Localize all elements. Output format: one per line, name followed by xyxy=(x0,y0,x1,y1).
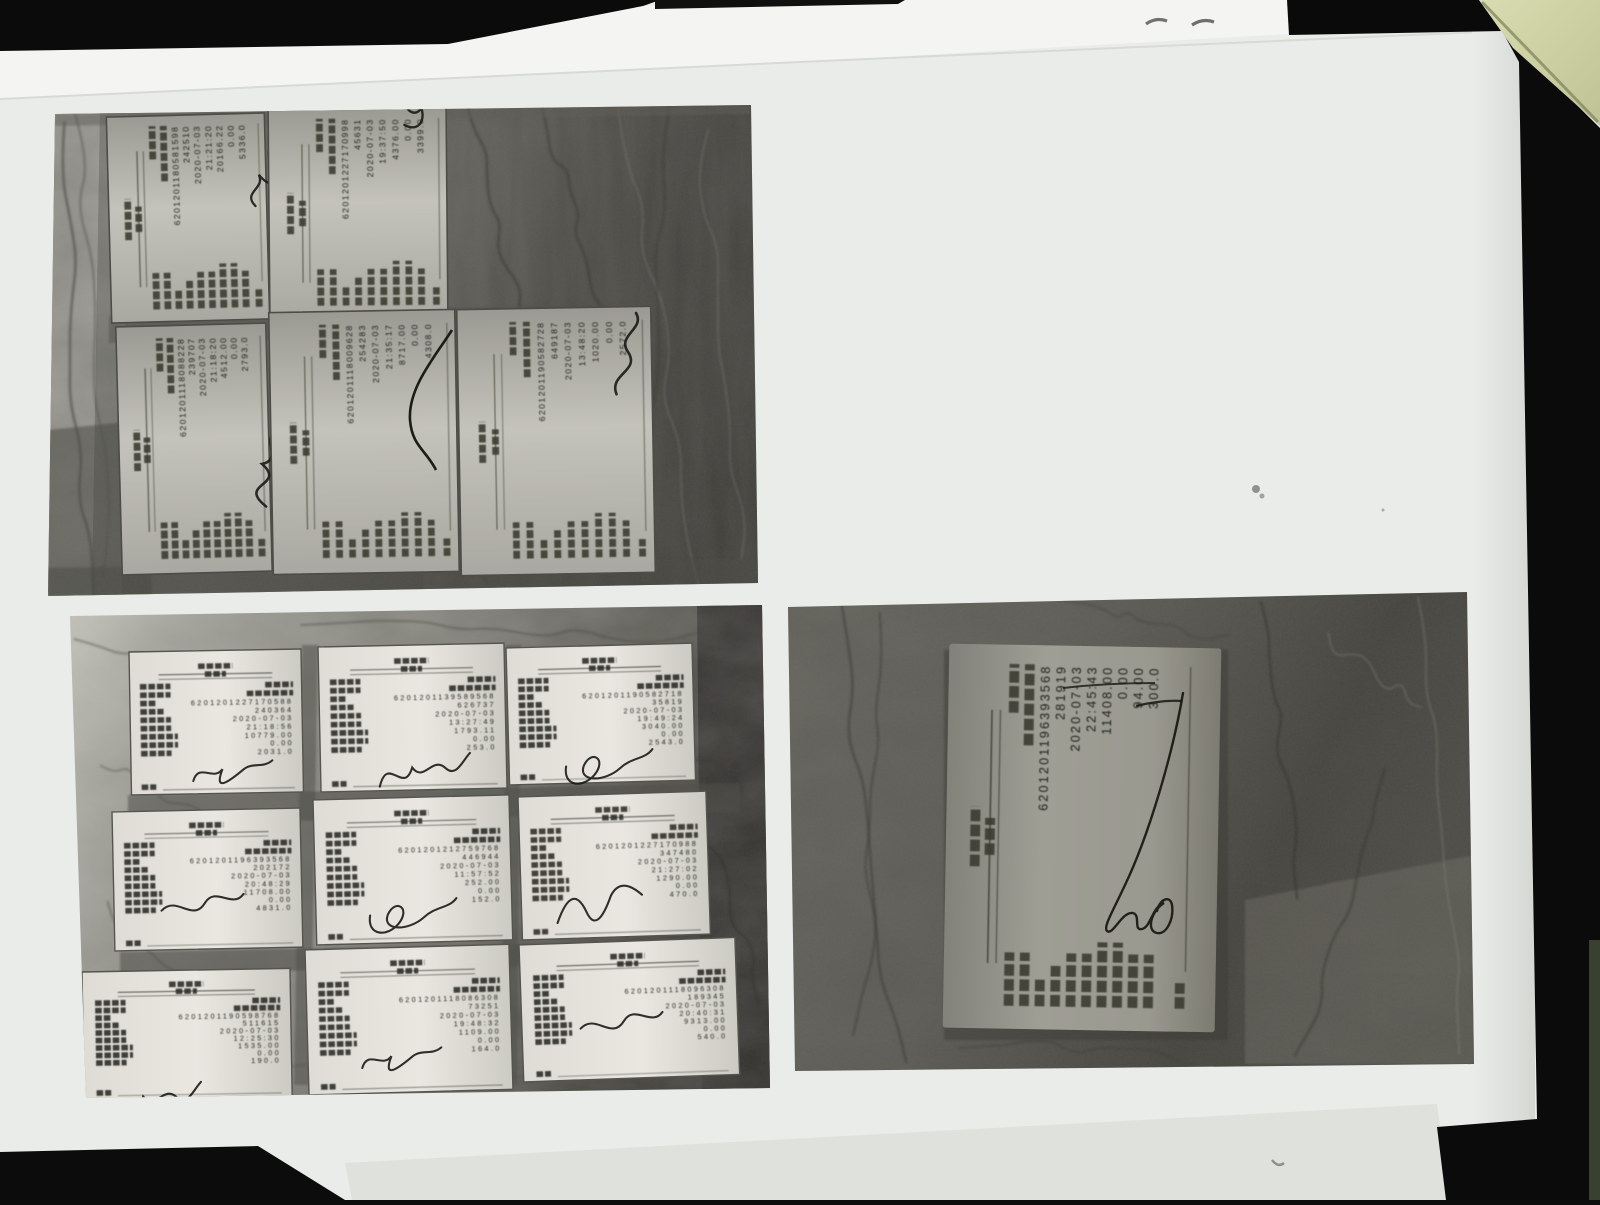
svg-text:0.00: 0.00 xyxy=(229,336,240,359)
svg-text:239707: 239707 xyxy=(186,337,197,375)
svg-text:11408.00: 11408.00 xyxy=(1100,666,1115,735)
svg-text:6201201227170998: 6201201227170998 xyxy=(340,119,351,220)
svg-text:5336.0: 5336.0 xyxy=(237,124,248,160)
svg-text:2020-07-03: 2020-07-03 xyxy=(365,118,376,177)
svg-text:6201201196393568: 6201201196393568 xyxy=(1036,664,1053,811)
svg-text:0.00: 0.00 xyxy=(604,320,614,343)
svg-text:22:45:43: 22:45:43 xyxy=(1084,665,1099,732)
svg-text:152.0: 152.0 xyxy=(472,894,502,904)
svg-text:2020-07-03: 2020-07-03 xyxy=(1068,665,1084,752)
svg-text:94.00: 94.00 xyxy=(1131,666,1146,709)
svg-text:19:37:50: 19:37:50 xyxy=(377,118,387,164)
svg-text:21:21:20: 21:21:20 xyxy=(203,125,214,171)
svg-text:2543.0: 2543.0 xyxy=(649,737,686,747)
svg-text:13:48:20: 13:48:20 xyxy=(576,321,587,367)
svg-text:21:18:20: 21:18:20 xyxy=(207,337,218,383)
svg-text:6201201118009628: 6201201118009628 xyxy=(344,324,356,423)
svg-text:20166.22: 20166.22 xyxy=(214,124,225,172)
svg-text:2020-07-03: 2020-07-03 xyxy=(197,337,209,396)
svg-text:4308.0: 4308.0 xyxy=(423,323,434,358)
svg-text:4512.00: 4512.00 xyxy=(218,336,229,378)
svg-text:253.0: 253.0 xyxy=(467,742,497,752)
svg-text:470.0: 470.0 xyxy=(670,889,700,899)
svg-text:2020-07-03: 2020-07-03 xyxy=(192,125,204,184)
svg-text:8717.00: 8717.00 xyxy=(396,323,407,365)
svg-text:1020.00: 1020.00 xyxy=(590,321,601,363)
svg-text:2020-07-03: 2020-07-03 xyxy=(563,321,574,380)
svg-text:2020-07-03: 2020-07-03 xyxy=(370,324,381,383)
svg-text:0.00: 0.00 xyxy=(410,323,420,346)
svg-text:254283: 254283 xyxy=(357,324,368,362)
svg-text:0.00: 0.00 xyxy=(403,118,413,141)
svg-text:45631: 45631 xyxy=(352,118,362,149)
svg-text:242510: 242510 xyxy=(181,125,192,163)
svg-text:6201201190582728: 6201201190582728 xyxy=(535,321,547,421)
svg-text:21:35:17: 21:35:17 xyxy=(383,324,394,370)
svg-text:4376.00: 4376.00 xyxy=(390,118,400,160)
svg-text:540.0: 540.0 xyxy=(697,1031,727,1041)
svg-text:190.0: 190.0 xyxy=(251,1055,281,1065)
svg-text:4831.0: 4831.0 xyxy=(256,903,293,913)
svg-text:0.00: 0.00 xyxy=(225,124,236,147)
svg-text:2031.0: 2031.0 xyxy=(258,747,295,757)
svg-text:2793.0: 2793.0 xyxy=(239,336,250,372)
svg-text:281919: 281919 xyxy=(1053,665,1068,720)
svg-text:164.0: 164.0 xyxy=(472,1044,502,1054)
svg-text:649187: 649187 xyxy=(549,321,560,359)
